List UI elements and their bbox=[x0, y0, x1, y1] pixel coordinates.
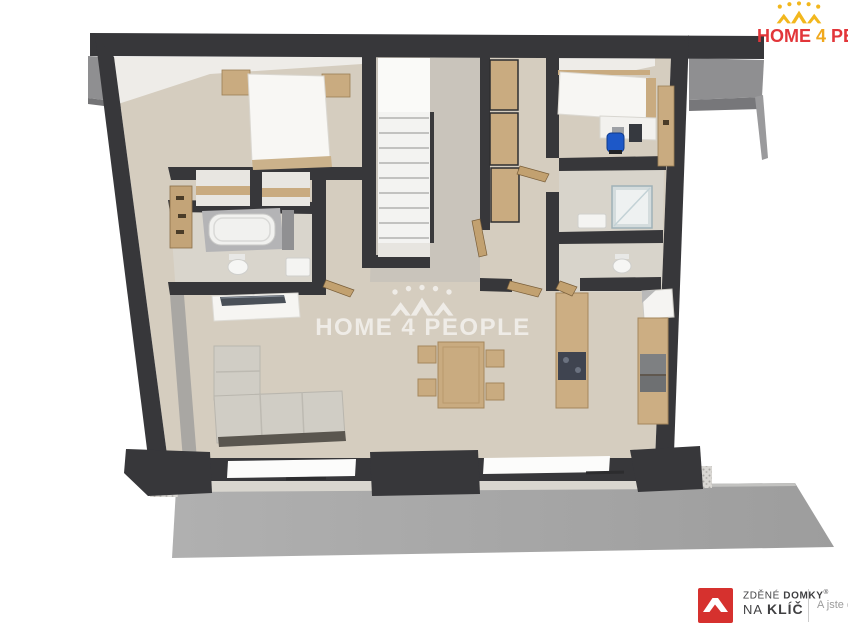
bath-cabinet bbox=[282, 210, 294, 250]
brand-word-people: PEOPLE bbox=[831, 26, 848, 46]
hallway-cabinets bbox=[490, 60, 519, 222]
office-chair bbox=[607, 133, 624, 152]
wall-bathroom-south bbox=[168, 282, 326, 295]
closet-shelf-left bbox=[196, 186, 250, 195]
wall-stair-west bbox=[362, 57, 376, 268]
toilet-wc bbox=[613, 259, 631, 273]
wc bbox=[613, 254, 631, 273]
sink-shower-room bbox=[578, 214, 606, 228]
footer-logo-square bbox=[698, 588, 733, 623]
dining-chair-4 bbox=[486, 383, 504, 400]
closet-shelf-right bbox=[262, 188, 310, 197]
bottom-wall-corner-left bbox=[124, 449, 212, 496]
stair-railing bbox=[430, 112, 434, 243]
wall-stair-east bbox=[480, 57, 490, 230]
watermark-crown-icon bbox=[386, 284, 458, 318]
wall-closet-divider bbox=[250, 167, 262, 207]
footer-logo-line2: NA KLÍČ bbox=[743, 601, 804, 617]
nightstand-left bbox=[222, 70, 250, 95]
roof-overhang-right bbox=[689, 58, 768, 160]
staircase bbox=[378, 58, 434, 257]
kitchen-sink bbox=[640, 354, 666, 374]
footer-divider bbox=[808, 589, 809, 622]
dining-table bbox=[438, 342, 484, 408]
kitchen-oven bbox=[640, 376, 666, 392]
wall-bedroom-kids-west bbox=[546, 57, 559, 158]
dining-chair-1 bbox=[418, 346, 436, 363]
footer-word-klic: KLÍČ bbox=[767, 601, 804, 617]
registered-mark: ® bbox=[824, 589, 829, 596]
window-pier-center bbox=[370, 450, 480, 496]
top-wall bbox=[90, 33, 764, 59]
brand-logo-text: HOME 4 PEOPLE bbox=[757, 26, 848, 47]
wall-bathroom-east bbox=[312, 167, 326, 295]
wall-shower-wc-divider bbox=[559, 230, 663, 244]
dining-chair-2 bbox=[418, 379, 436, 396]
brand-word-home: HOME bbox=[757, 26, 811, 46]
bottom-wall-corner-right bbox=[630, 446, 703, 492]
terrace-door-left bbox=[227, 459, 356, 478]
wall-bedroom-kids-south bbox=[559, 156, 666, 171]
watermark-text: HOME 4 PEOPLE bbox=[303, 314, 543, 342]
nightstand-right bbox=[322, 74, 350, 97]
wardrobe-kids bbox=[658, 86, 674, 166]
double-bed bbox=[248, 74, 330, 162]
cooktop bbox=[558, 352, 586, 380]
footer-tagline: A jste d bbox=[817, 599, 848, 611]
footer-word-zdene: ZDĚNÉ bbox=[743, 590, 780, 601]
laptop bbox=[629, 124, 642, 142]
floorplan-page: { "canvas": { "width": 848, "height": 63… bbox=[0, 0, 848, 636]
footer-word-na: NA bbox=[743, 602, 762, 617]
roof-icon bbox=[698, 588, 733, 623]
kitchen-island bbox=[556, 293, 588, 408]
wall-kitchen-north bbox=[580, 277, 661, 291]
brand-word-4: 4 bbox=[816, 26, 826, 46]
single-bed bbox=[558, 72, 648, 120]
sink-bathroom bbox=[286, 258, 310, 276]
terrace bbox=[172, 483, 834, 558]
single-bed-side bbox=[646, 78, 656, 122]
wall-hall-south bbox=[480, 278, 512, 292]
toilet-bathroom bbox=[228, 254, 248, 275]
dining-chair-3 bbox=[486, 350, 504, 367]
office-chair-base bbox=[609, 150, 622, 154]
brand-crown-icon bbox=[770, 1, 828, 25]
wall-bedroom-kids-west-lower bbox=[546, 192, 559, 291]
